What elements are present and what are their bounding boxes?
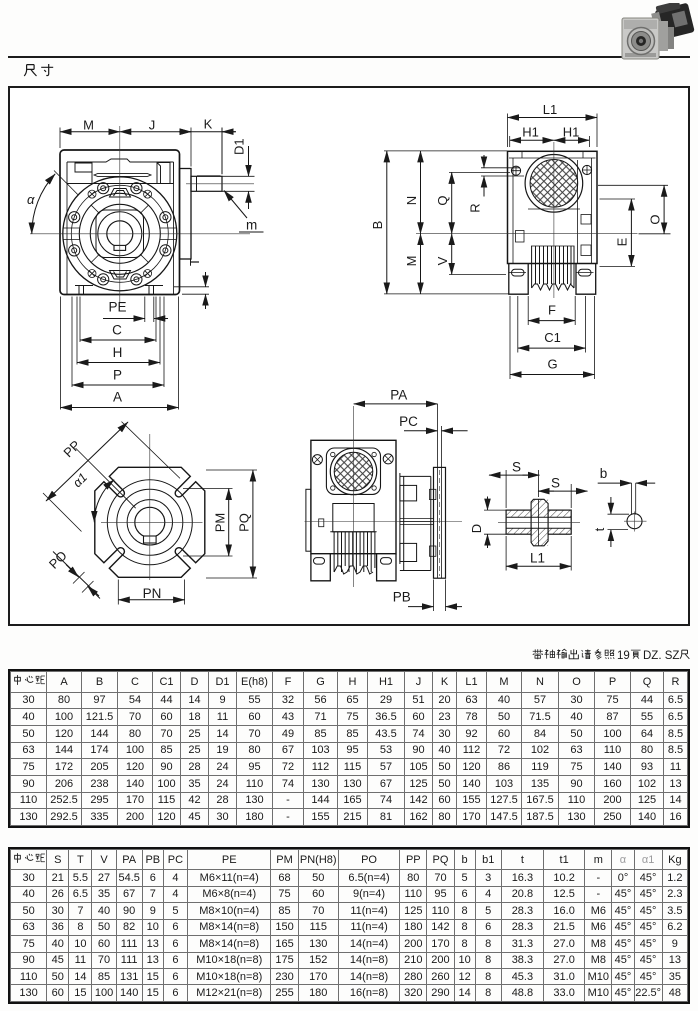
svg-text:Q: Q [435, 195, 450, 205]
svg-text:C: C [112, 323, 122, 338]
svg-text:t: t [592, 527, 607, 531]
svg-text:O: O [648, 214, 663, 224]
svg-text:M: M [404, 256, 419, 267]
svg-text:α: α [27, 192, 35, 207]
svg-text:H: H [113, 345, 123, 360]
svg-text:PC: PC [399, 414, 418, 429]
svg-text:b: b [600, 466, 608, 481]
svg-text:PO: PO [46, 548, 70, 572]
svg-text:F: F [548, 302, 556, 317]
svg-text:M: M [83, 117, 94, 132]
svg-text:H1: H1 [522, 124, 539, 139]
svg-text:P: P [113, 367, 122, 382]
svg-text:S: S [512, 460, 521, 475]
svg-text:S: S [551, 476, 560, 491]
svg-text:PE: PE [108, 300, 126, 315]
svg-text:PB: PB [393, 590, 411, 605]
svg-text:m: m [246, 218, 257, 233]
svg-text:J: J [149, 117, 156, 132]
svg-text:L1: L1 [543, 102, 557, 117]
svg-text:D1: D1 [232, 138, 247, 155]
svg-text:N: N [404, 196, 419, 205]
svg-text:E: E [615, 237, 630, 246]
svg-text:H1: H1 [563, 124, 580, 139]
svg-text:PM: PM [213, 513, 228, 533]
svg-text:PN: PN [143, 586, 162, 601]
svg-text:PA: PA [390, 388, 407, 403]
svg-text:PQ: PQ [237, 513, 252, 532]
svg-text:L1: L1 [530, 551, 545, 566]
svg-text:DZ. SZ: DZ. SZ [643, 650, 679, 662]
svg-text:19: 19 [617, 650, 630, 662]
svg-text:D: D [469, 524, 484, 533]
svg-text:B: B [370, 221, 385, 230]
svg-text:G: G [547, 356, 557, 371]
svg-text:C1: C1 [544, 330, 561, 345]
svg-text:R: R [468, 203, 483, 212]
svg-text:K: K [204, 117, 213, 132]
svg-text:V: V [435, 256, 450, 265]
svg-text:T: T [187, 258, 202, 266]
svg-text:α1: α1 [70, 470, 90, 490]
svg-text:A: A [113, 390, 122, 405]
svg-text:PP: PP [60, 437, 83, 460]
